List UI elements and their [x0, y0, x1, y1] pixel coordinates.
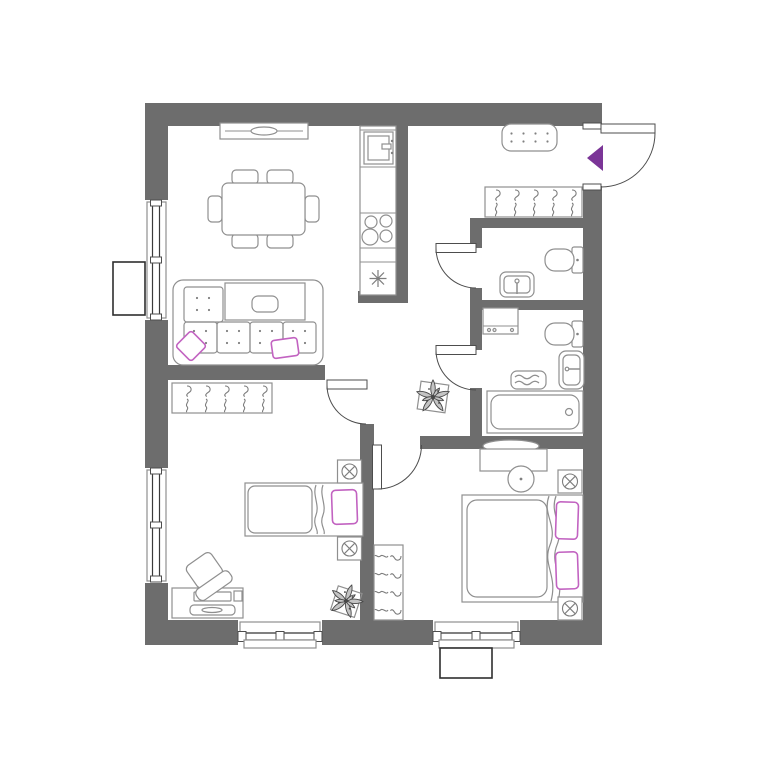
exterior-unit-bottom [440, 648, 492, 678]
wall-top [145, 103, 602, 126]
nightstand-lamp [338, 460, 362, 483]
window-bedroom-bottom [238, 620, 322, 648]
wall-tv [220, 123, 308, 139]
bedroom-coat-hooks [172, 383, 272, 413]
wc-basin [500, 272, 534, 297]
bed-pillow [555, 502, 578, 540]
dressing-table [480, 440, 547, 492]
wall-kitchen [396, 126, 408, 303]
kitchen-counter [360, 126, 396, 295]
washing-machine [483, 308, 518, 334]
floor-plan-drawing [0, 0, 768, 768]
nightstand-lamp [338, 537, 362, 560]
sofa-pillow [271, 337, 299, 358]
wall-wc-north [470, 218, 583, 228]
exterior-unit-left [113, 262, 145, 315]
entrance-door-swing [601, 133, 655, 187]
towel-shelf [511, 371, 546, 389]
nightstand-lamp [558, 597, 582, 620]
dining-chair [267, 234, 293, 248]
door-bedroom-small [327, 380, 367, 424]
fridge-icon [370, 270, 387, 287]
wc-toilet [545, 247, 583, 273]
dining-chair [305, 196, 319, 222]
door-bedroom-master [373, 445, 422, 489]
floor-plan-page [0, 0, 768, 768]
bed-pillow [555, 552, 578, 590]
hallway-plant [416, 380, 450, 413]
wall-livingroom-south [168, 365, 325, 380]
entry-coat-hooks [485, 187, 582, 217]
master-wardrobe-hooks [374, 545, 403, 620]
bath-toilet [545, 321, 583, 347]
double-bed [462, 495, 583, 602]
wall-bottom [145, 620, 602, 645]
wall-wc-west-b [470, 288, 482, 350]
door-wc [436, 244, 476, 289]
window-living-left [145, 200, 168, 320]
dining-chair [267, 170, 293, 184]
bathtub [487, 391, 583, 433]
dining-set [208, 170, 319, 248]
door-bathroom [436, 346, 476, 391]
single-bed [245, 483, 363, 536]
coffee-table [225, 283, 305, 320]
window-master-bottom [433, 620, 520, 648]
window-bedroom-left [145, 468, 168, 583]
dining-table [222, 183, 305, 235]
dining-chair [208, 196, 222, 222]
dining-chair [232, 234, 258, 248]
bath-basin [559, 351, 584, 389]
doormat [502, 124, 557, 151]
wall-bath-west [470, 388, 482, 436]
dining-chair [232, 170, 258, 184]
bed-pillow [331, 490, 357, 525]
nightstand-lamp [558, 470, 582, 493]
entrance-door-leaf [601, 124, 655, 133]
